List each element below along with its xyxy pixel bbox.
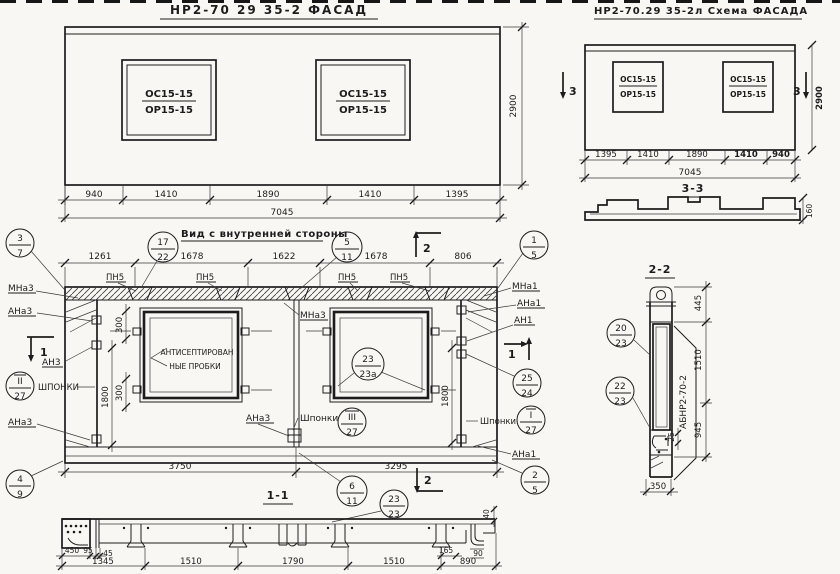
balloon-1-5: 1 5 [498, 231, 548, 288]
inner-view-left-vdims: 1800 300 300 [101, 304, 130, 452]
balloon-4-9: 4 9 [6, 461, 63, 500]
balloon-II-27: II 27 [6, 372, 34, 402]
dim: 945 [694, 422, 704, 438]
dim: 25 [667, 432, 676, 442]
window-mark-bottom: ОР15-15 [339, 105, 387, 116]
facade-right: НР2-70.29 35-2л Схема ФАСАДА ОС15-15 ОР1… [560, 6, 825, 182]
label-shponki: ШПОНКИ [38, 383, 79, 393]
dim: 1395 [446, 190, 469, 200]
balloon-bottom: 9 [17, 490, 23, 500]
balloon-top: 23 [362, 355, 373, 365]
balloon-top: 25 [521, 374, 532, 384]
section-3-marker-left: 3 [560, 72, 578, 99]
drawing-sheet: НР2-70 29 35-2 ФАСАД ОС15-15 ОР15-15 ОС1… [0, 0, 840, 574]
balloon-top: I [530, 411, 533, 421]
section-3-3-profile [585, 197, 800, 220]
dim: 350 [650, 482, 666, 492]
balloon-2-5: 2 5 [492, 460, 549, 496]
dim: 1410 [155, 190, 178, 200]
section-1-1: 1-1 23 23 [56, 489, 502, 570]
balloon-bottom: 23 [615, 339, 626, 349]
dim: 3295 [385, 462, 408, 472]
dim: 450 [65, 546, 80, 555]
window-mark-bottom: ОР15-15 [620, 90, 656, 99]
balloon-top: 17 [157, 238, 168, 248]
dim: 3750 [169, 462, 192, 472]
dim: 940 [85, 190, 102, 200]
section-3-3: 3-3 160 [585, 182, 814, 224]
window-mark-top: ОС15-15 [145, 89, 193, 100]
balloon-bottom: 24 [521, 389, 533, 399]
dim: 1890 [257, 190, 280, 200]
dim: 1622 [273, 252, 296, 262]
balloon-top: II [17, 377, 22, 387]
balloon-top: 22 [614, 382, 625, 392]
dim-height: 2900 [815, 86, 825, 110]
balloon-bottom: 27 [525, 426, 536, 436]
dim: 806 [454, 252, 471, 262]
window-mark-top: ОС15-15 [620, 75, 656, 84]
inner-view: Вид с внутренней стороны [6, 229, 549, 507]
balloon-I-27: I 27 [517, 406, 545, 436]
section-1-marker-right: 1 [504, 337, 532, 361]
balloon-top: 2 [532, 471, 538, 481]
dim-total: 7045 [679, 168, 702, 178]
section-2-2-body [646, 287, 676, 477]
plug-note-line2: НЫЕ ПРОБКИ [169, 362, 221, 371]
facade-left-panel [65, 27, 500, 185]
balloon-top: 4 [17, 475, 23, 485]
dim: 95 [83, 546, 93, 555]
dim: 890 [460, 557, 476, 567]
balloon-bottom: 22 [157, 253, 168, 263]
dim: 940 [772, 150, 790, 160]
balloon-bottom: 23 [614, 397, 625, 407]
balloon-top: 23 [388, 495, 399, 505]
dim: 1395 [595, 150, 617, 160]
balloon-bottom: 27 [14, 392, 25, 402]
dim: 1790 [282, 557, 304, 567]
balloon-top: 3 [17, 234, 23, 244]
inner-view-mid-labels: МНа3 АНа3 Шпонки [246, 303, 338, 436]
balloon-bottom: 7 [17, 249, 23, 259]
dim: 1345 [92, 557, 114, 567]
section-3-marker-right: 3 2900 [793, 41, 825, 154]
facade-left-title: НР2-70 29 35-2 ФАСАД [170, 3, 368, 17]
facade-left-height-dim: 2900 [503, 22, 529, 190]
dim: 40 [482, 509, 491, 519]
label-shponki: Шпонки [300, 414, 338, 424]
balloon-3-7: 3 7 [6, 229, 64, 289]
window-mark-top: ОС15-15 [730, 75, 766, 84]
dim: 1800 [441, 385, 451, 407]
dim: 445 [694, 295, 704, 311]
dim: 1510 [383, 557, 405, 567]
balloon-20-23: 20 23 [607, 319, 650, 355]
section-1-1-title: 1-1 [267, 489, 290, 502]
balloon-top: III [348, 413, 356, 423]
balloon-III-27: III 27 [338, 408, 366, 438]
panel-drawing: НР2-70 29 35-2 ФАСАД ОС15-15 ОР15-15 ОС1… [0, 0, 840, 574]
inner-view-left-labels: МНа3 АНа3 1 АН3 ШПОНКИ АНа3 [8, 284, 95, 440]
section-mark-label: 2 [424, 474, 433, 487]
dim-thickness: 160 [805, 204, 814, 219]
balloon-bottom: 5 [531, 251, 537, 261]
section-2-2: 2-2 АБНР2-70-2 20 23 [606, 263, 712, 496]
inner-view-title: Вид с внутренней стороны [181, 229, 348, 240]
facade-right-window-2: ОС15-15 ОР15-15 [723, 62, 773, 112]
dim-height: 2900 [509, 94, 519, 117]
balloon-top: 6 [349, 482, 355, 492]
facade-left-bottom-dims: 940 1410 1890 1410 1395 7045 [58, 185, 507, 222]
dim: 1510 [694, 349, 704, 371]
dim: 90 [473, 549, 483, 558]
window-mark-bottom: ОР15-15 [730, 90, 766, 99]
dim: 1890 [686, 150, 708, 160]
window-mark-bottom: ОР15-15 [145, 105, 193, 116]
dim: 1678 [181, 252, 204, 262]
balloon-bottom: 11 [341, 253, 352, 263]
top-hatch-band [65, 287, 497, 300]
balloon-bottom: 23а [360, 370, 377, 380]
balloon-bottom: 27 [346, 428, 357, 438]
balloon-top: 5 [344, 238, 350, 248]
dim: 1510 [180, 557, 202, 567]
dim: 1410 [637, 150, 659, 160]
section-mark-label: 2 [423, 242, 432, 255]
dim: 1678 [365, 252, 388, 262]
balloon-bottom: 11 [346, 497, 357, 507]
joint-tabs [92, 306, 466, 443]
section-2-marker-top: 2 [413, 231, 441, 257]
dim: 300 [115, 385, 125, 401]
dim: 300 [115, 317, 125, 333]
dim-total: 7045 [271, 208, 294, 218]
balloon-23-23: 23 23 [332, 490, 408, 522]
dim: 1261 [89, 252, 112, 262]
section-mark-label: 1 [508, 348, 517, 361]
facade-right-window-1: ОС15-15 ОР15-15 [613, 62, 663, 112]
balloon-23-23a: 23 23а [338, 348, 425, 390]
balloon-top: 20 [615, 324, 627, 334]
balloon-25-24: 25 24 [466, 354, 541, 399]
balloon-top: 1 [531, 236, 537, 246]
dim: 165 [439, 546, 454, 555]
facade-left-window-2: ОС15-15 ОР15-15 [316, 60, 410, 140]
section-3-3-title: 3-3 [682, 182, 705, 195]
label-shponki: Шпонки [480, 417, 516, 427]
section-2-2-title: 2-2 [649, 263, 672, 276]
window-mark-top: ОС15-15 [339, 89, 387, 100]
balloon-22-23: 22 23 [606, 377, 650, 428]
dim: 1800 [101, 386, 111, 408]
dim: 1410 [734, 150, 758, 160]
balloon-17-22: 17 22 [141, 232, 178, 288]
dim: 1410 [359, 190, 382, 200]
facade-right-bottom-dims: 1395 1410 1890 1410 940 7045 [579, 150, 801, 182]
balloon-bottom: 5 [532, 486, 538, 496]
section-mark-label: 3 [793, 85, 802, 98]
part-label: АБНР2-70-2 [679, 375, 689, 429]
section-mark-label: 3 [569, 85, 578, 98]
inner-view-right-vdim: 1800 [441, 340, 456, 450]
facade-left: НР2-70 29 35-2 ФАСАД ОС15-15 ОР15-15 ОС1… [58, 3, 529, 222]
balloon-6-11: 6 11 [299, 453, 367, 507]
facade-left-window-1: ОС15-15 ОР15-15 [122, 60, 216, 140]
facade-right-title: НР2-70.29 35-2л Схема ФАСАДА [594, 6, 808, 17]
section-1-1-profile [62, 519, 495, 548]
inner-window-1: АНТИСЕПТИРОВАН НЫЕ ПРОБКИ [110, 308, 272, 402]
plug-note-line1: АНТИСЕПТИРОВАН [160, 348, 233, 357]
